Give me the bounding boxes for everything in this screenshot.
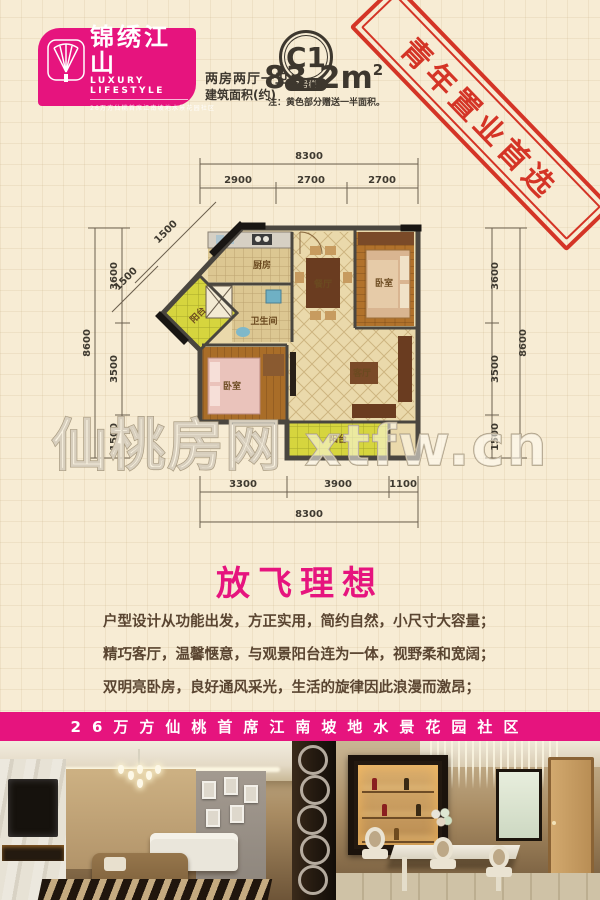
interior-photo (0, 741, 600, 900)
photo-picture-frame (224, 777, 238, 795)
dim-bottom-3: 1100 (389, 479, 417, 490)
room-bedroom-bottom: 卧室 (223, 380, 241, 392)
fan-shell-icon (46, 38, 86, 86)
dim-top-2: 2700 (297, 175, 325, 186)
room-kitchen: 厨房 (253, 259, 271, 271)
dim-left-total: 8600 (82, 329, 93, 357)
dim-bottom-total: 8300 (295, 509, 323, 520)
dim-bottom-2: 3900 (324, 479, 352, 490)
dim-top-total: 8300 (295, 151, 323, 162)
photo-flowers (428, 805, 454, 831)
dim-right-1: 3600 (490, 262, 501, 290)
room-living: 客厅 (352, 367, 371, 379)
photo-dining-chair (486, 845, 512, 885)
floorplan-drawing: 8300 2900 2700 2700 3300 3900 1100 8300 … (0, 140, 600, 560)
photo-ring-screen (292, 741, 336, 900)
dim-left-2: 3500 (109, 355, 120, 383)
photo-window (496, 769, 542, 841)
description-line-3: 双明亮卧房，良好通风采光，生活的旋律因此浪漫而激昂； (103, 672, 523, 705)
brand-logo: 锦绣江山 LUXURY LIFESTYLE 26万方仙桃首席江南坡地水景花园社区 (38, 28, 196, 106)
photo-picture-frame (230, 805, 244, 823)
area-number: 83.2m (264, 60, 373, 96)
area-sup: 2 (373, 61, 383, 79)
photo-accent-wall (196, 771, 266, 891)
dim-bottom-1: 3300 (229, 479, 257, 490)
brand-name: 锦绣江山 (90, 24, 188, 76)
photo-floor-right (336, 873, 600, 900)
room-bedroom-top: 卧室 (375, 277, 393, 289)
dim-top-1: 2900 (224, 175, 252, 186)
dim-right-2: 3500 (490, 355, 501, 383)
photo-table-leg (402, 857, 407, 891)
page-title: 放飞理想 (0, 556, 600, 605)
unit-area-value: 83.2m2 (264, 60, 383, 96)
photo-dining-chair (430, 837, 456, 877)
brand-subtitle: LUXURY LIFESTYLE (90, 76, 188, 100)
photo-tv (8, 779, 58, 837)
photo-picture-frame (206, 809, 220, 827)
description-block: 户型设计从功能出发，方正实用，简约自然，小尺寸大容量； 精巧客厅，温馨惬意，与观… (103, 606, 523, 705)
brand-tagline: 26万方仙桃首席江南坡地水景花园社区 (90, 103, 188, 112)
dim-top-3: 2700 (368, 175, 396, 186)
poster-root: 锦绣江山 LUXURY LIFESTYLE 26万方仙桃首席江南坡地水景花园社区… (0, 0, 600, 900)
photo-picture-frame (244, 785, 258, 803)
photo-pillow (104, 857, 126, 871)
photo-media-console (2, 845, 64, 861)
unit-note: 注：黄色部分赠送一半面积。 (268, 95, 385, 108)
watermark: 仙桃房网 xtfw.cn (51, 414, 548, 479)
description-line-1: 户型设计从功能出发，方正实用，简约自然，小尺寸大容量； (103, 606, 523, 639)
photo-striped-rug (38, 879, 272, 900)
photo-chandelier-left (118, 749, 162, 789)
description-line-2: 精巧客厅，温馨惬意，与观景阳台连为一体，视野柔和宽阔； (103, 639, 523, 672)
photo-picture-frame (202, 781, 216, 799)
photo-door-handle (552, 821, 556, 825)
photo-dining-chair (362, 827, 388, 867)
room-dining: 餐厅 (313, 278, 332, 290)
dim-right-total: 8600 (518, 329, 529, 357)
slogan-banner: 26万方仙桃首席江南坡地水景花园社区 (0, 712, 600, 741)
room-bath: 卫生间 (250, 315, 277, 327)
